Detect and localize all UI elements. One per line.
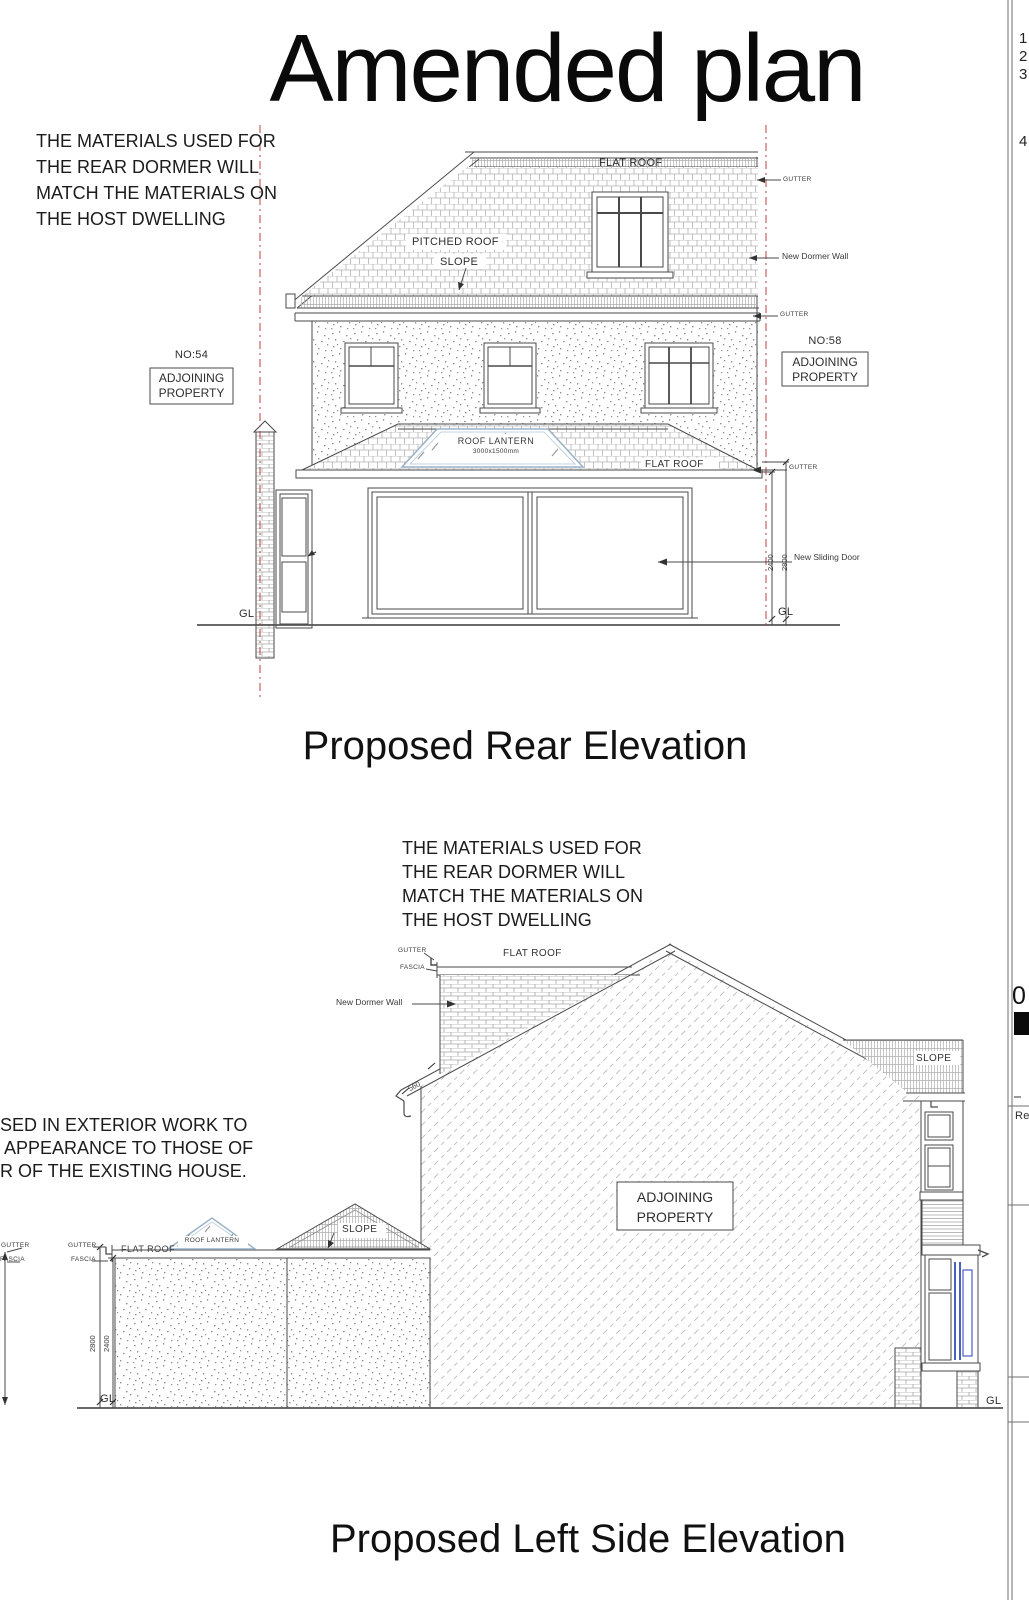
flat-roof-label: FLAT ROOF xyxy=(599,157,662,170)
gutter-label: GUTTER xyxy=(68,1242,97,1249)
side-elevation-caption: Proposed Left Side Elevation xyxy=(330,1516,830,1562)
gutter-label: GUTTER xyxy=(1,1242,30,1249)
dim-2400-label: 2400 xyxy=(103,1335,112,1352)
flat-roof-label: FLAT ROOF xyxy=(645,459,704,471)
gl-label: GL xyxy=(239,608,254,621)
adjoining-text: PROPERTY xyxy=(617,1207,733,1227)
no58-label: NO:58 xyxy=(782,335,868,348)
gutter-label: GUTTER xyxy=(398,947,427,954)
gl-label: GL xyxy=(778,606,793,619)
slope-label: SLOPE xyxy=(342,1224,377,1236)
title-block-edge xyxy=(1008,0,1029,1600)
drawing-sheet: Amended plan THE MATERIALS USED FOR THE … xyxy=(0,0,1029,1600)
adjoining-text: PROPERTY xyxy=(150,386,233,401)
no54-label: NO:54 xyxy=(150,349,233,362)
flat-roof-label: FLAT ROOF xyxy=(503,948,562,960)
adjoining-property-box-right: ADJOINING PROPERTY xyxy=(782,355,868,385)
adjoining-text: ADJOINING xyxy=(782,355,868,370)
adjoining-text: ADJOINING xyxy=(150,371,233,386)
note-line: APPEARANCE TO THOSE OF xyxy=(4,1137,253,1160)
adjoining-property-box-left: ADJOINING PROPERTY xyxy=(150,371,233,401)
note-line: MATCH THE MATERIALS ON xyxy=(402,884,643,908)
adjoining-text: PROPERTY xyxy=(782,370,868,385)
gutter-label: GUTTER xyxy=(783,176,812,183)
fascia-label: FASCIA xyxy=(71,1256,96,1263)
new-dormer-wall-label: New Dormer Wall xyxy=(782,252,848,262)
note-line: THE REAR DORMER WILL xyxy=(36,154,277,180)
page-title: Amended plan xyxy=(252,14,882,124)
gutter-label: GUTTER xyxy=(780,311,809,318)
dim-2800-label: 2800 xyxy=(89,1335,98,1352)
fascia-label: FASCIA xyxy=(0,1256,25,1263)
note-line: SED IN EXTERIOR WORK TO xyxy=(0,1114,253,1137)
pitched-roof-label: PITCHED ROOF xyxy=(412,236,499,249)
gl-label: GL xyxy=(986,1395,1001,1408)
adjoining-property-box-side: ADJOINING PROPERTY xyxy=(617,1187,733,1227)
new-sliding-door-label: New Sliding Door xyxy=(794,553,860,563)
adjoining-text: ADJOINING xyxy=(617,1187,733,1207)
note-line: THE MATERIALS USED FOR xyxy=(36,128,277,154)
note-line: THE HOST DWELLING xyxy=(402,908,643,932)
note-line: THE MATERIALS USED FOR xyxy=(402,836,643,860)
exterior-work-note-cut: SED IN EXTERIOR WORK TO APPEARANCE TO TH… xyxy=(0,1114,253,1183)
materials-note-side: THE MATERIALS USED FOR THE REAR DORMER W… xyxy=(402,836,643,932)
gl-label: GL xyxy=(100,1393,115,1406)
titleblock-digit: 1 xyxy=(1019,30,1027,47)
fascia-label: FASCIA xyxy=(400,964,425,971)
roof-lantern-label: ROOF LANTERN xyxy=(446,436,546,446)
note-line: MATCH THE MATERIALS ON xyxy=(36,180,277,206)
materials-note-rear: THE MATERIALS USED FOR THE REAR DORMER W… xyxy=(36,128,277,232)
roof-lantern-label: ROOF LANTERN xyxy=(172,1237,252,1244)
note-line: THE REAR DORMER WILL xyxy=(402,860,643,884)
slope-label: SLOPE xyxy=(440,256,478,269)
elevation-linework xyxy=(0,0,1029,1600)
slope-label: SLOPE xyxy=(916,1053,951,1065)
roof-lantern-size-label: 3000x1500mm xyxy=(446,448,546,455)
dim-2400-label: 2400 xyxy=(767,554,776,571)
gutter-label: GUTTER xyxy=(789,464,818,471)
dim-2800-label: 2800 xyxy=(781,554,790,571)
titleblock-digit: 3 xyxy=(1019,66,1027,83)
note-line: THE HOST DWELLING xyxy=(36,206,277,232)
titleblock-number: 0 xyxy=(1012,982,1026,1011)
rear-elevation-caption: Proposed Rear Elevation xyxy=(285,723,765,769)
note-line: R OF THE EXISTING HOUSE. xyxy=(0,1160,253,1183)
titleblock-rev-label: Re xyxy=(1015,1110,1029,1123)
titleblock-digit: 2 xyxy=(1019,48,1027,65)
new-dormer-wall-label: New Dormer Wall xyxy=(336,998,402,1008)
titleblock-digit: 4 xyxy=(1019,133,1027,150)
flat-roof-label: FLAT ROOF xyxy=(121,1244,175,1254)
